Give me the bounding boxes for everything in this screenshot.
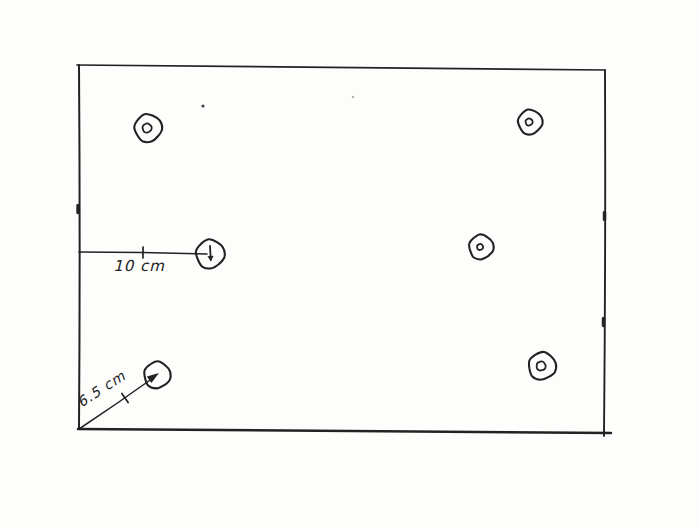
hole-top-right-center-dot [526,118,533,125]
scanned-paper-sheet: 10 cm6.5 cm [0,0,698,528]
hole-top-left-center-dot [143,123,152,132]
hole-top-left-outline [134,114,162,142]
board-edge-right [604,70,605,436]
board-edge-top [77,65,605,70]
hole-bottom-right-center-dot [537,361,546,370]
dimension-10cm-label: 10 cm [113,257,165,275]
dimension-6-5cm-label: 6.5 cm [74,367,128,410]
board-edge-left [79,65,80,429]
stray-ink-dot [352,96,354,98]
hole-top-right-outline [518,109,543,134]
board-edge-bottom [78,429,611,433]
hand-drawn-plate-diagram: 10 cm6.5 cm [0,0,698,528]
hole-mid-right-center-dot [477,244,483,250]
hole-bottom-right-outline [529,352,556,380]
hole-mid-right-outline [469,234,494,259]
hole-mid-left-pointer-arrowhead [207,256,213,261]
stray-ink-dot [201,104,204,107]
dimension-6-5cm-tick [122,393,128,402]
